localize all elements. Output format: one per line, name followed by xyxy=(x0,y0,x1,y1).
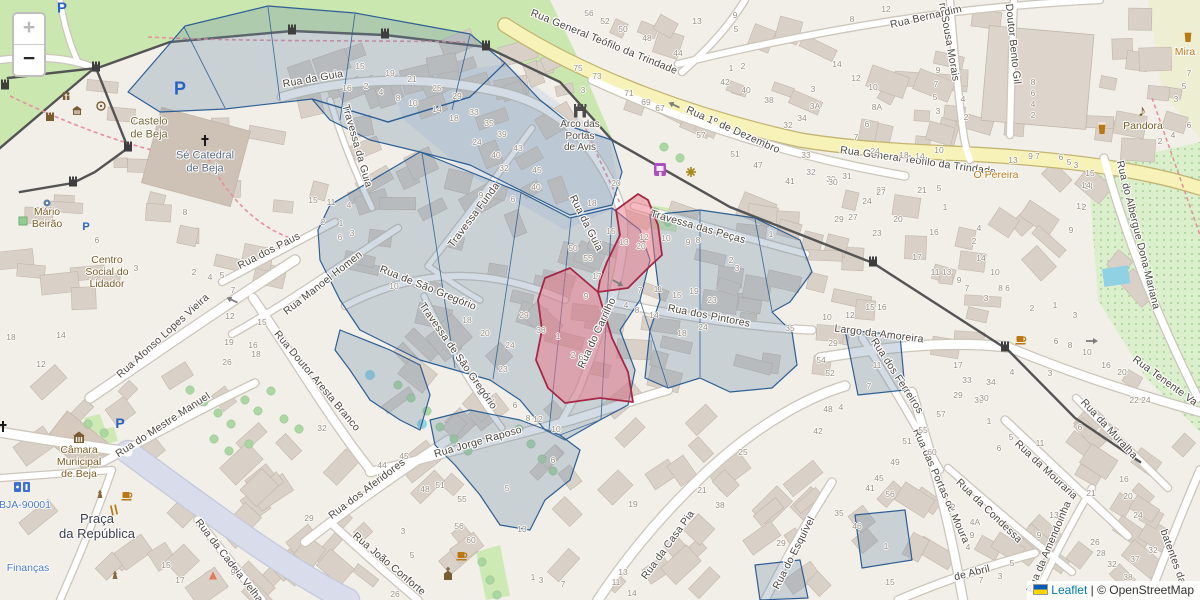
shop-icon xyxy=(654,163,666,176)
svg-text:P: P xyxy=(115,415,124,431)
attribution-bar: Leaflet | © OpenStreetMap xyxy=(1027,581,1200,600)
wall-tower-icon xyxy=(124,142,132,152)
svg-text:P: P xyxy=(57,0,67,16)
svg-text:P: P xyxy=(174,78,186,98)
svg-text:♪: ♪ xyxy=(1138,103,1146,120)
zoom-in-button[interactable]: + xyxy=(14,14,44,45)
cup-icon xyxy=(122,492,132,501)
parking-icon: P xyxy=(82,221,89,233)
wall-tower-icon xyxy=(288,25,296,35)
defib-icon xyxy=(14,482,30,492)
beer-icon xyxy=(1184,31,1191,43)
svg-text:P: P xyxy=(82,221,89,233)
wall-tower-icon xyxy=(1001,342,1009,352)
wall-tower-icon xyxy=(482,41,490,51)
asterisk-icon xyxy=(686,167,696,177)
parking-icon: P xyxy=(57,0,67,16)
museum-icon xyxy=(72,106,82,115)
attribution-separator: | xyxy=(1091,583,1094,597)
wall-tower-icon xyxy=(1,80,9,90)
parking-icon: P xyxy=(115,415,124,431)
wall-tower-icon xyxy=(69,177,77,187)
wall-tower-icon xyxy=(869,257,877,267)
wall-tower-icon xyxy=(381,29,389,39)
cup-icon xyxy=(1016,336,1026,345)
zoom-out-button[interactable]: − xyxy=(14,45,44,75)
beer-icon xyxy=(1098,123,1105,135)
fountain-icon xyxy=(44,200,51,207)
castle-icon xyxy=(46,113,54,122)
music-icon: ♪ xyxy=(1138,103,1146,120)
osm-copyright[interactable]: © OpenStreetMap xyxy=(1097,583,1194,597)
parking-icon: P xyxy=(174,78,186,98)
leaflet-link[interactable]: Leaflet xyxy=(1051,583,1087,597)
fork-icon xyxy=(110,504,118,515)
wall-tower-icon xyxy=(92,62,100,72)
arrow-icon xyxy=(1086,338,1098,344)
ukraine-flag-icon xyxy=(1033,584,1048,595)
monument-icon xyxy=(97,102,105,110)
greensq-icon xyxy=(19,217,27,225)
map-canvas[interactable]: PPPP♪ Rua da GuiaRua da GuiaTravessa da … xyxy=(0,0,1200,600)
zoom-control: + − xyxy=(12,12,46,77)
map-tiles: PPPP♪ xyxy=(0,0,1200,600)
